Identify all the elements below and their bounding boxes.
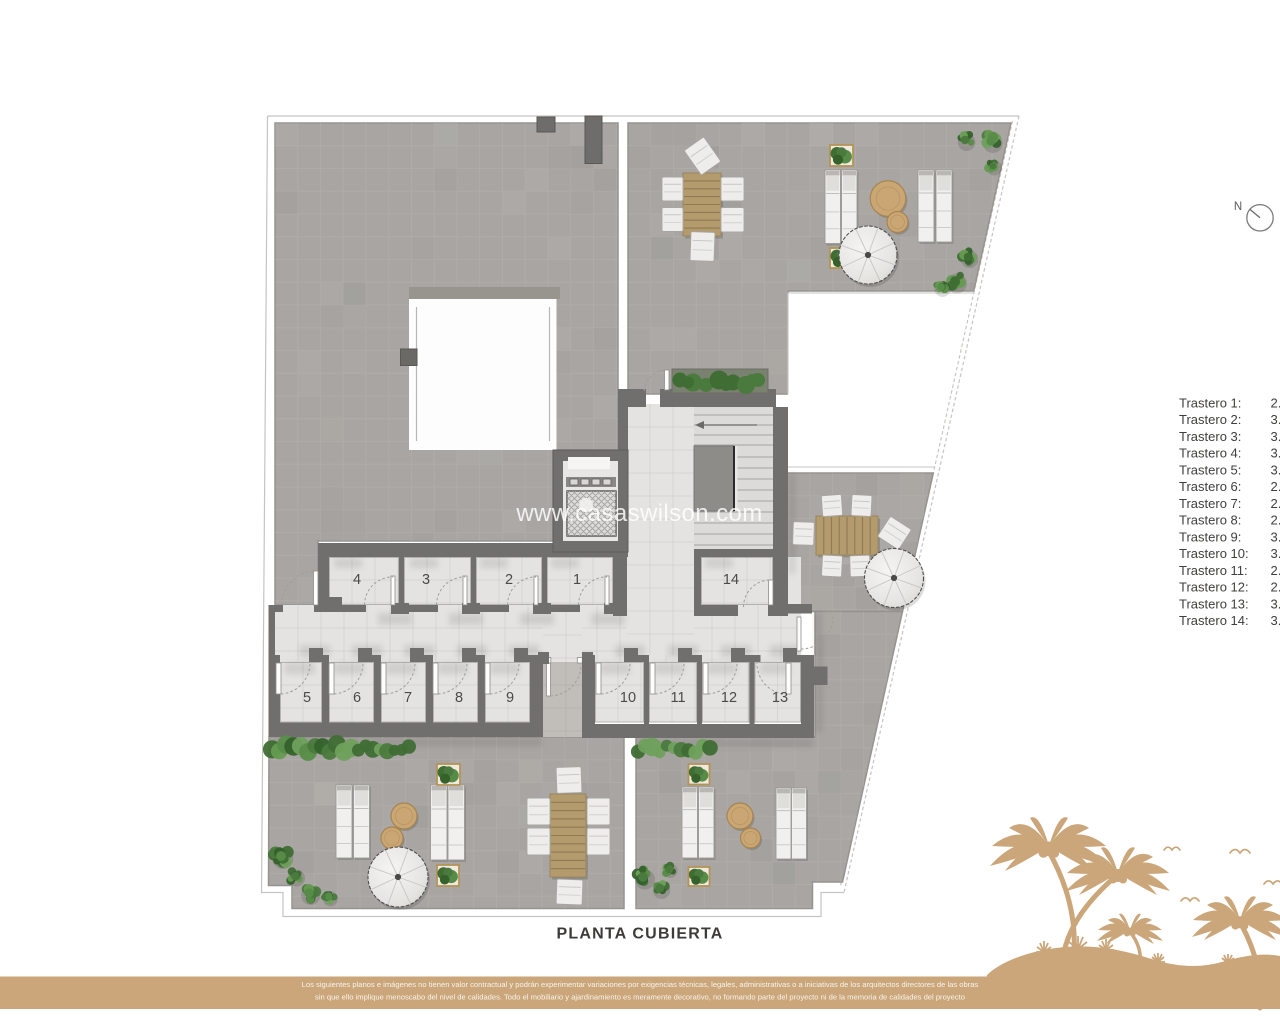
svg-text:3.10 m²: 3.10 m²	[1271, 412, 1280, 427]
svg-text:2.85 m²: 2.85 m²	[1271, 479, 1280, 494]
svg-text:3.15 m²: 3.15 m²	[1271, 596, 1280, 611]
svg-text:Trastero 1:: Trastero 1:	[1179, 396, 1241, 411]
svg-text:3: 3	[422, 572, 430, 588]
svg-text:3.25 m²: 3.25 m²	[1271, 546, 1280, 561]
svg-text:2.95 m²: 2.95 m²	[1271, 580, 1280, 595]
svg-text:Trastero 6:: Trastero 6:	[1179, 479, 1241, 494]
svg-text:N: N	[1234, 201, 1242, 213]
svg-text:Trastero 5:: Trastero 5:	[1179, 462, 1241, 477]
svg-text:3.15 m²: 3.15 m²	[1271, 429, 1280, 444]
svg-text:Trastero 3:: Trastero 3:	[1179, 429, 1241, 444]
svg-text:Trastero 10:: Trastero 10:	[1179, 546, 1249, 561]
svg-text:Trastero 8:: Trastero 8:	[1179, 513, 1241, 528]
svg-text:Trastero 4:: Trastero 4:	[1179, 446, 1241, 461]
svg-text:2.90 m²: 2.90 m²	[1271, 563, 1280, 578]
svg-text:12: 12	[721, 690, 737, 706]
svg-text:3.30 m²: 3.30 m²	[1271, 613, 1280, 628]
svg-text:5: 5	[303, 690, 311, 706]
svg-text:Trastero 2:: Trastero 2:	[1179, 412, 1241, 427]
svg-text:6: 6	[353, 690, 361, 706]
svg-text:sin que ello implique menoscab: sin que ello implique menoscabo del nive…	[315, 993, 965, 1002]
svg-text:Trastero 7:: Trastero 7:	[1179, 496, 1241, 511]
svg-text:4: 4	[353, 572, 361, 588]
svg-text:3.10 m²: 3.10 m²	[1271, 529, 1280, 544]
svg-text:1: 1	[573, 572, 581, 588]
svg-text:2: 2	[505, 572, 513, 588]
svg-text:PLANTA CUBIERTA: PLANTA CUBIERTA	[556, 926, 723, 943]
svg-text:Trastero 13:: Trastero 13:	[1179, 596, 1249, 611]
svg-text:Trastero 11:: Trastero 11:	[1179, 563, 1248, 578]
svg-text:13: 13	[772, 690, 788, 706]
svg-text:Trastero 9:: Trastero 9:	[1179, 529, 1241, 544]
svg-text:8: 8	[455, 690, 463, 706]
svg-text:2.70 m²: 2.70 m²	[1271, 396, 1280, 411]
svg-text:Trastero 12:: Trastero 12:	[1179, 580, 1249, 595]
svg-text:www.casaswilson.com: www.casaswilson.com	[515, 500, 762, 527]
svg-text:14: 14	[723, 572, 739, 588]
svg-text:10: 10	[620, 690, 636, 706]
svg-text:2.80 m²: 2.80 m²	[1271, 496, 1280, 511]
svg-text:9: 9	[506, 690, 514, 706]
svg-text:3.05 m²: 3.05 m²	[1271, 462, 1280, 477]
svg-text:Trastero 14:: Trastero 14:	[1179, 613, 1249, 628]
svg-text:7: 7	[404, 690, 412, 706]
svg-text:2.75 m²: 2.75 m²	[1271, 513, 1280, 528]
svg-text:11: 11	[670, 690, 685, 706]
svg-text:3.20 m²: 3.20 m²	[1271, 446, 1280, 461]
svg-text:Los siguientes planos e imágen: Los siguientes planos e imágenes no tien…	[302, 980, 979, 989]
